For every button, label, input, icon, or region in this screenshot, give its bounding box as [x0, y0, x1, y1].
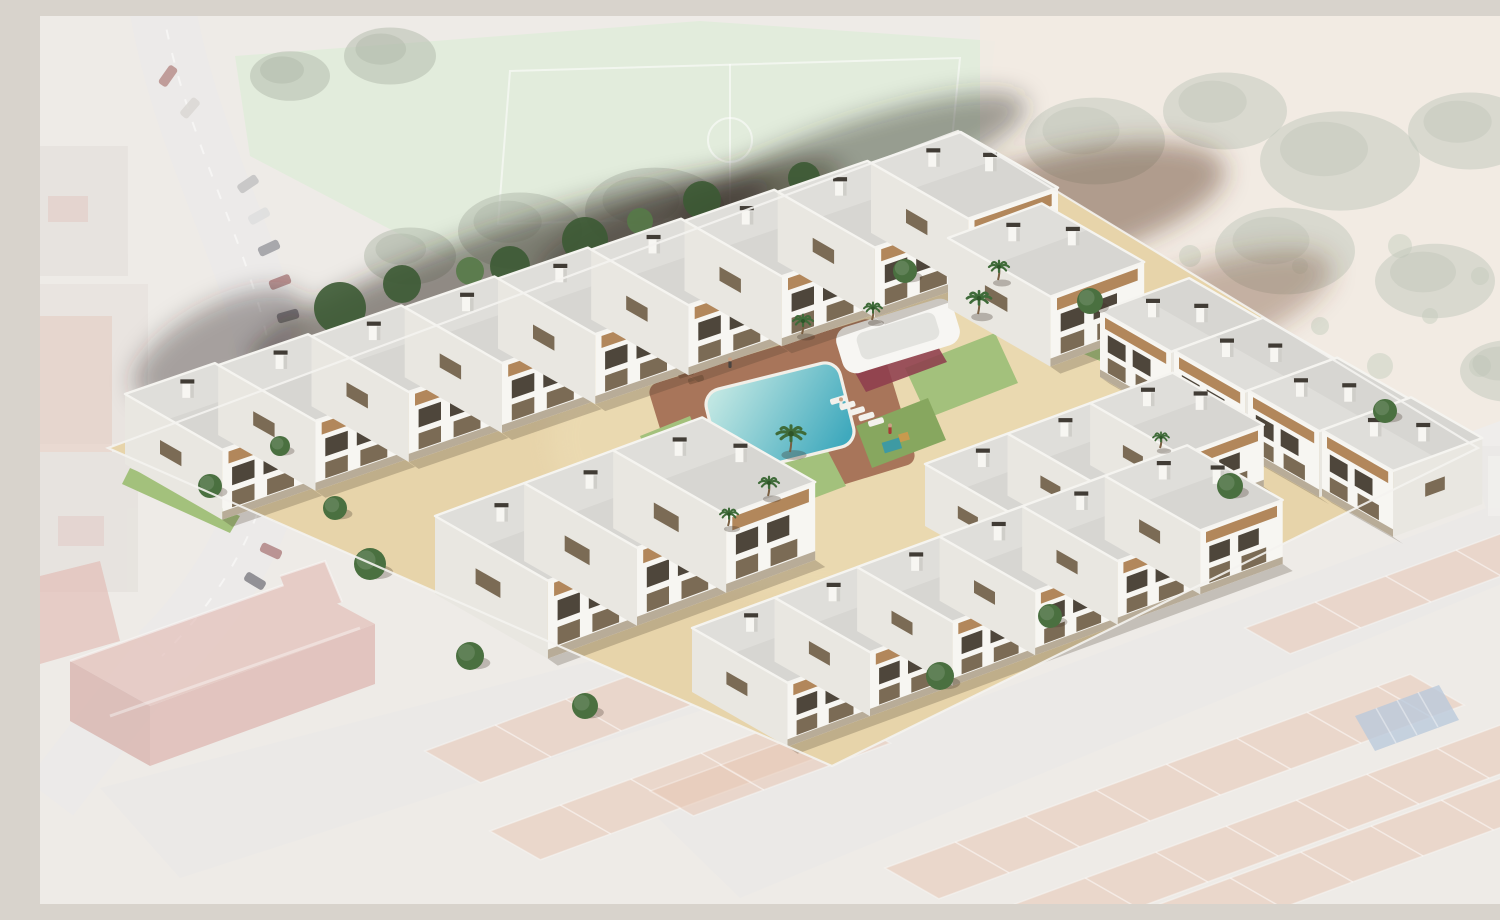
- chimney-side: [1304, 384, 1308, 397]
- chimney: [1196, 307, 1204, 322]
- chimney-cap: [460, 293, 474, 297]
- chimney: [1344, 387, 1352, 402]
- palm-crown: [871, 307, 875, 311]
- aerial-render: [40, 16, 1500, 904]
- tree-highlight: [928, 664, 945, 681]
- tree-highlight: [356, 550, 375, 569]
- tree-highlight: [1040, 606, 1054, 620]
- chimney-side: [1016, 228, 1020, 241]
- tree-highlight: [895, 261, 909, 275]
- palm-crown: [727, 513, 731, 517]
- chimney: [835, 181, 843, 196]
- chimney-side: [504, 509, 508, 522]
- tree-highlight: [458, 644, 475, 661]
- person-figure: [839, 401, 842, 408]
- tree-highlight: [1079, 290, 1095, 306]
- person-figure: [728, 361, 731, 368]
- palm-shadow: [971, 313, 993, 321]
- palm-crown: [977, 296, 982, 301]
- chimney-side: [1352, 389, 1356, 402]
- chimney-cap: [1006, 223, 1020, 227]
- chimney: [1076, 495, 1084, 510]
- chimney: [1060, 422, 1068, 437]
- chimney-side: [1278, 349, 1282, 362]
- chimney-side: [919, 558, 923, 571]
- chimney-cap: [1141, 388, 1155, 392]
- chimney: [369, 325, 377, 340]
- chimney-cap: [827, 583, 841, 587]
- chimney: [928, 152, 936, 167]
- chimney-side: [1076, 232, 1080, 245]
- chimney-cap: [1342, 383, 1356, 387]
- palm-crown: [788, 431, 794, 437]
- chimney: [746, 617, 754, 632]
- chimney-cap: [733, 444, 747, 448]
- chimney-cap: [494, 503, 508, 507]
- chimney-cap: [1194, 304, 1208, 308]
- chimney-side: [683, 443, 687, 456]
- chimney-cap: [1194, 391, 1208, 395]
- chimney: [182, 383, 190, 398]
- chimney-cap: [976, 449, 990, 453]
- chimney-side: [1002, 527, 1006, 540]
- chimney: [985, 156, 993, 171]
- chimney-side: [190, 385, 194, 398]
- chimney-side: [936, 154, 940, 167]
- chimney-side: [837, 588, 841, 601]
- chimney-cap: [926, 148, 940, 152]
- dark-tree: [383, 265, 421, 303]
- palm-shadow: [993, 280, 1011, 287]
- chimney-cap: [673, 437, 687, 441]
- chimney: [1296, 382, 1304, 397]
- chimney-side: [750, 212, 754, 225]
- chimney-cap: [1416, 423, 1430, 427]
- chimney: [1148, 302, 1156, 317]
- chimney-side: [594, 476, 598, 489]
- chimney-cap: [1074, 491, 1088, 495]
- chimney: [978, 452, 986, 467]
- chimney: [1159, 464, 1167, 479]
- chimney: [675, 441, 683, 456]
- chimney-cap: [553, 264, 567, 268]
- chimney-side: [743, 449, 747, 462]
- chimney-side: [563, 269, 567, 282]
- chimney: [1008, 226, 1016, 241]
- chimney-cap: [1211, 465, 1225, 469]
- chimney-cap: [647, 235, 661, 239]
- palm-shadow: [781, 450, 806, 460]
- scene-canvas: [40, 16, 1500, 904]
- person-figure: [888, 427, 891, 434]
- chimney: [1068, 230, 1076, 245]
- chimney-side: [377, 327, 381, 340]
- chimney-side: [1167, 466, 1171, 479]
- person-head: [839, 397, 843, 401]
- chimney: [994, 525, 1002, 540]
- chimney: [276, 354, 284, 369]
- chimney-cap: [992, 522, 1006, 526]
- chimney: [1370, 421, 1378, 436]
- chimney-cap: [1146, 299, 1160, 303]
- chimney-cap: [367, 322, 381, 326]
- palm-shadow: [1157, 448, 1171, 454]
- chimney-side: [754, 619, 758, 632]
- chimney-cap: [744, 613, 758, 617]
- person-head: [888, 423, 892, 427]
- chimney: [586, 474, 594, 489]
- palm-shadow: [868, 320, 884, 326]
- chimney-cap: [909, 552, 923, 556]
- chimney-side: [470, 298, 474, 311]
- chimney-cap: [180, 379, 194, 383]
- palm-shadow: [763, 496, 781, 503]
- tree-highlight: [200, 476, 214, 490]
- person-head: [728, 357, 732, 361]
- chimney-side: [843, 183, 847, 196]
- chimney-side: [1156, 304, 1160, 317]
- chimney-cap: [1294, 378, 1308, 382]
- tree-highlight: [1375, 401, 1389, 415]
- chimney-side: [1204, 397, 1208, 410]
- chimney-cap: [274, 350, 288, 354]
- chimney: [1270, 347, 1278, 362]
- chimney-side: [1151, 393, 1155, 406]
- chimney-side: [1230, 344, 1234, 357]
- chimney-cap: [1220, 338, 1234, 342]
- chimney: [829, 586, 837, 601]
- chimney: [1222, 342, 1230, 357]
- chimney: [911, 556, 919, 571]
- chimney-side: [284, 356, 288, 369]
- palm-shadow: [724, 526, 740, 532]
- chimney: [462, 296, 470, 311]
- chimney-side: [986, 454, 990, 467]
- chimney: [1196, 395, 1204, 410]
- chimney: [1418, 426, 1426, 441]
- chimney-cap: [1157, 461, 1171, 465]
- chimney-cap: [1066, 227, 1080, 231]
- palm-crown: [767, 481, 771, 485]
- chimney-cap: [584, 470, 598, 474]
- chimney-cap: [1058, 418, 1072, 422]
- chimney-side: [1426, 428, 1430, 441]
- palm-crown: [801, 319, 805, 323]
- chimney-side: [1084, 497, 1088, 510]
- chimney-side: [1378, 423, 1382, 436]
- chimney-side: [993, 158, 997, 171]
- tree-highlight: [1219, 475, 1235, 491]
- palm-crown: [1159, 436, 1162, 439]
- chimney-side: [1204, 309, 1208, 322]
- chimney-side: [1068, 424, 1072, 437]
- chimney: [735, 447, 743, 462]
- chimney: [496, 507, 504, 522]
- tree-highlight: [574, 695, 590, 711]
- palm-crown: [997, 265, 1001, 269]
- tree-highlight: [272, 438, 284, 450]
- chimney: [1143, 391, 1151, 406]
- tree-highlight: [325, 498, 339, 512]
- palm-shadow: [797, 334, 815, 341]
- chimney-cap: [1268, 343, 1282, 347]
